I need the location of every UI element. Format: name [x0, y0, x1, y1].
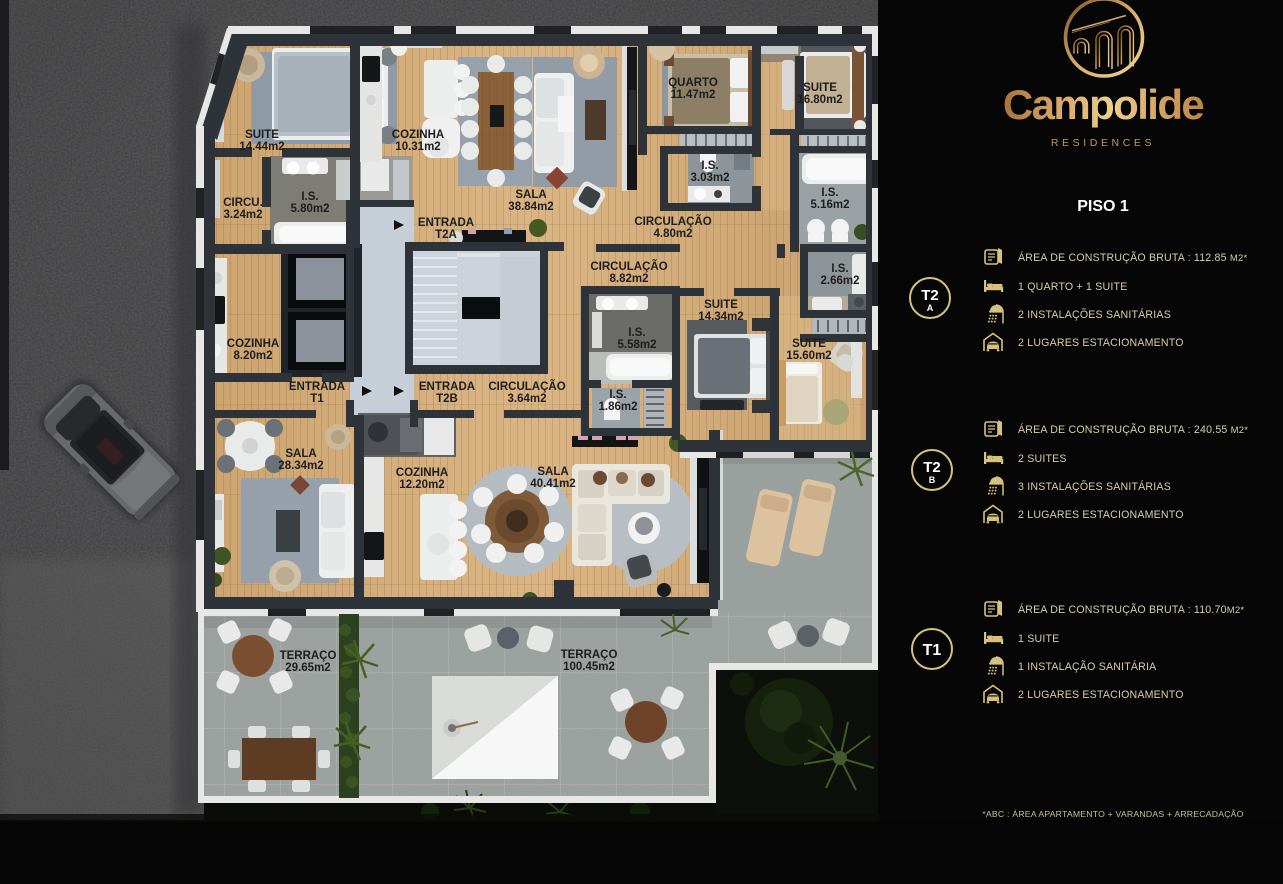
svg-text:15.60m2: 15.60m2 [786, 350, 831, 362]
svg-text:RESIDENCES: RESIDENCES [1051, 137, 1155, 149]
svg-text:ÁREA DE CONSTRUÇÃO BRUTA : 24: ÁREA DE CONSTRUÇÃO BRUTA : 240.55 M2* [1018, 423, 1248, 436]
svg-text:2 LUGARES ESTACIONAMENTO: 2 LUGARES ESTACIONAMENTO [1018, 337, 1184, 349]
svg-text:CIRCULAÇÃO: CIRCULAÇÃO [634, 215, 711, 228]
svg-text:8.20m2: 8.20m2 [233, 350, 272, 362]
svg-text:TERRAÇO: TERRAÇO [280, 650, 337, 662]
svg-text:14.44m2: 14.44m2 [239, 141, 284, 153]
svg-text:2 LUGARES ESTACIONAMENTO: 2 LUGARES ESTACIONAMENTO [1018, 509, 1184, 521]
svg-text:1 INSTALAÇÃO SANITÁRIA: 1 INSTALAÇÃO SANITÁRIA [1018, 660, 1157, 673]
svg-text:1.86m2: 1.86m2 [598, 401, 637, 413]
svg-text:SUITE: SUITE [245, 129, 279, 141]
svg-text:I.S.: I.S. [821, 187, 838, 199]
svg-text:ENTRADA: ENTRADA [419, 381, 475, 393]
svg-text:100.45m2: 100.45m2 [563, 661, 615, 673]
svg-text:CIRCU.: CIRCU. [223, 197, 263, 209]
svg-text:SUITE: SUITE [792, 338, 826, 350]
svg-text:COZINHA: COZINHA [227, 338, 279, 350]
svg-text:1 QUARTO + 1 SUITE: 1 QUARTO + 1 SUITE [1018, 281, 1127, 293]
svg-text:ÁREA DE CONSTRUÇÃO BRUTA : 11: ÁREA DE CONSTRUÇÃO BRUTA : 112.85 M2* [1018, 251, 1247, 264]
svg-text:29.65m2: 29.65m2 [285, 662, 330, 674]
svg-text:SUITE: SUITE [803, 82, 837, 94]
svg-text:1 SUITE: 1 SUITE [1018, 633, 1059, 645]
svg-text:40.41m2: 40.41m2 [530, 478, 575, 490]
svg-text:ENTRADA: ENTRADA [289, 381, 345, 393]
svg-text:2 SUITES: 2 SUITES [1018, 453, 1067, 465]
svg-text:2.66m2: 2.66m2 [820, 275, 859, 287]
svg-text:SALA: SALA [515, 189, 546, 201]
svg-text:4.80m2: 4.80m2 [653, 228, 692, 240]
svg-text:5.80m2: 5.80m2 [290, 203, 329, 215]
svg-text:3.24m2: 3.24m2 [223, 209, 262, 221]
svg-text:TERRAÇO: TERRAÇO [561, 649, 618, 661]
svg-text:T2: T2 [923, 459, 941, 476]
svg-text:3.64m2: 3.64m2 [507, 393, 546, 405]
svg-text:38.84m2: 38.84m2 [508, 201, 553, 213]
svg-text:ENTRADA: ENTRADA [418, 217, 474, 229]
svg-text:A: A [927, 303, 934, 313]
svg-text:T1: T1 [310, 393, 324, 405]
svg-text:I.S.: I.S. [301, 191, 318, 203]
svg-text:*ABC : ÁREA APARTAMENTO + VAR: *ABC : ÁREA APARTAMENTO + VARANDAS + ARR… [982, 809, 1243, 819]
svg-text:PISO 1: PISO 1 [1077, 198, 1129, 215]
svg-text:16.80m2: 16.80m2 [797, 94, 842, 106]
svg-text:8.82m2: 8.82m2 [609, 273, 648, 285]
svg-text:2 LUGARES ESTACIONAMENTO: 2 LUGARES ESTACIONAMENTO [1018, 689, 1184, 701]
svg-text:T2: T2 [921, 287, 939, 304]
svg-text:5.16m2: 5.16m2 [810, 199, 849, 211]
svg-text:14.34m2: 14.34m2 [698, 311, 743, 323]
svg-text:11.47m2: 11.47m2 [671, 89, 716, 101]
svg-text:I.S.: I.S. [609, 389, 626, 401]
svg-text:5.58m2: 5.58m2 [617, 339, 656, 351]
svg-text:28.34m2: 28.34m2 [278, 460, 323, 472]
svg-text:QUARTO: QUARTO [668, 77, 718, 89]
svg-text:B: B [929, 475, 936, 485]
svg-text:I.S.: I.S. [701, 160, 718, 172]
svg-text:12.20m2: 12.20m2 [399, 479, 444, 491]
svg-text:ÁREA DE CONSTRUÇÃO BRUTA : 11: ÁREA DE CONSTRUÇÃO BRUTA : 110.70M2* [1018, 603, 1244, 616]
svg-text:CIRCULAÇÃO: CIRCULAÇÃO [488, 380, 565, 393]
svg-text:T1: T1 [923, 642, 942, 659]
svg-text:2 INSTALAÇÕES SANITÁRIAS: 2 INSTALAÇÕES SANITÁRIAS [1018, 308, 1171, 321]
svg-text:SUITE: SUITE [704, 299, 738, 311]
svg-text:I.S.: I.S. [831, 263, 848, 275]
svg-text:SALA: SALA [285, 448, 316, 460]
svg-text:3 INSTALAÇÕES SANITÁRIAS: 3 INSTALAÇÕES SANITÁRIAS [1018, 480, 1171, 493]
svg-text:10.31m2: 10.31m2 [395, 141, 440, 153]
svg-text:T2B: T2B [436, 393, 458, 405]
svg-text:COZINHA: COZINHA [392, 129, 444, 141]
svg-text:T2A: T2A [435, 229, 457, 241]
svg-text:SALA: SALA [537, 466, 568, 478]
svg-text:3.03m2: 3.03m2 [690, 172, 729, 184]
svg-text:Campolide: Campolide [1003, 81, 1204, 128]
svg-text:COZINHA: COZINHA [396, 467, 448, 479]
svg-text:I.S.: I.S. [628, 327, 645, 339]
svg-text:CIRCULAÇÃO: CIRCULAÇÃO [590, 260, 667, 273]
